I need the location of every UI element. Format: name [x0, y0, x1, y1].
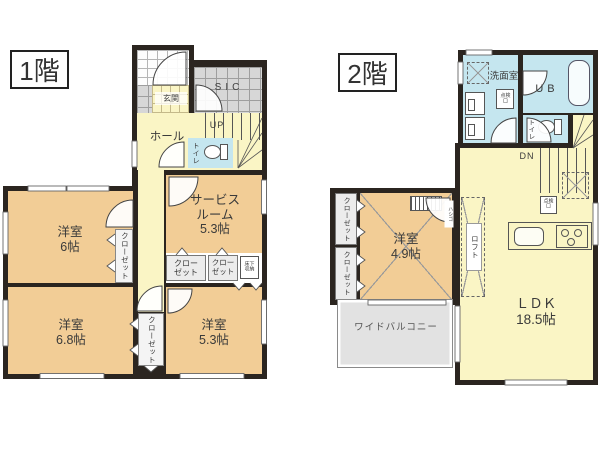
- swing-mark: [357, 226, 365, 238]
- ladder-label: ハシゴ: [445, 201, 454, 228]
- door-arc-bedroom6: [106, 200, 133, 227]
- closet-vertical2-label: クローゼット: [141, 315, 161, 364]
- closet-b-label: クロー ゼット: [208, 257, 238, 279]
- window: [40, 374, 104, 379]
- door-arc-toilet-1f: [159, 142, 184, 167]
- winder-line: [573, 135, 593, 148]
- swing-mark: [107, 234, 115, 246]
- door-arc-entrance: [153, 52, 186, 85]
- door-arc-washroom: [491, 118, 516, 143]
- closet-vertical1-label: クローゼット: [116, 231, 132, 281]
- winder-line: [573, 115, 584, 148]
- dn-label: DN: [516, 151, 538, 162]
- closet-a-label: クロー ゼット: [167, 257, 205, 279]
- window: [466, 50, 492, 55]
- swing-mark: [357, 254, 365, 266]
- window: [455, 306, 460, 362]
- window: [3, 300, 8, 346]
- window: [458, 62, 463, 84]
- balcony-label: ワイドバルコニー: [350, 321, 442, 334]
- bedroom53-label: 洋室 5.3帖: [185, 316, 243, 350]
- bedroom6-label: 洋室 6帖: [43, 224, 97, 256]
- window: [368, 300, 446, 305]
- swing-mark: [130, 318, 138, 330]
- window: [132, 141, 137, 167]
- toilet-label-1f: トイレ: [190, 139, 200, 168]
- hall-label: ホール: [144, 131, 190, 145]
- underfloor-label: 床下 収納: [241, 259, 258, 276]
- ub-label: UB: [528, 82, 566, 96]
- closet-2f-1-label: クローゼット: [337, 195, 355, 243]
- sic-label: SIC: [208, 81, 250, 94]
- winder-line: [238, 133, 262, 168]
- entrance-label: 玄関: [155, 92, 187, 105]
- loft-label: ロフト: [466, 223, 482, 271]
- bedroom49-label: 洋室 4.9帖: [378, 230, 434, 264]
- swing-mark: [216, 248, 228, 255]
- window: [505, 380, 567, 385]
- floorplan-image: 1階 2階: [0, 0, 600, 449]
- winder-line: [573, 120, 593, 148]
- closet-2f-2-label: クローゼット: [337, 249, 355, 298]
- washroom-label: 洗面室: [483, 70, 525, 83]
- swing-mark: [233, 283, 245, 290]
- bedroom68-label: 洋室 6.8帖: [42, 316, 100, 350]
- service-room-label: サービス ルーム 5.3帖: [179, 192, 251, 238]
- up-label: UP: [206, 120, 228, 131]
- windows-2f: [368, 50, 598, 385]
- window: [593, 203, 598, 245]
- window: [180, 374, 244, 379]
- swing-mark: [130, 344, 138, 356]
- window: [262, 180, 267, 214]
- toilet-label-2f: トイレ: [525, 116, 535, 143]
- door-arc-bedroom53: [168, 289, 192, 313]
- swing-mark: [357, 280, 365, 292]
- winder-line: [238, 150, 262, 168]
- window: [262, 300, 267, 344]
- swing-mark: [144, 366, 158, 372]
- door-arc-bedroom68: [137, 286, 162, 311]
- window: [3, 212, 8, 254]
- swing-mark: [107, 260, 115, 272]
- inspection-hatch2-label: 点検 口: [541, 198, 556, 212]
- winder-line: [238, 118, 262, 168]
- floor1-title: 1階: [10, 50, 69, 89]
- ldk-label: ＬＤＫ 18.5帖: [502, 293, 570, 331]
- inspection-hatch1-label: 点検 口: [498, 92, 513, 107]
- window: [28, 186, 66, 191]
- floor2-title: 2階: [338, 53, 397, 92]
- swing-mark: [357, 200, 365, 212]
- window: [67, 186, 109, 191]
- swing-mark: [250, 283, 262, 290]
- swing-mark: [176, 248, 188, 255]
